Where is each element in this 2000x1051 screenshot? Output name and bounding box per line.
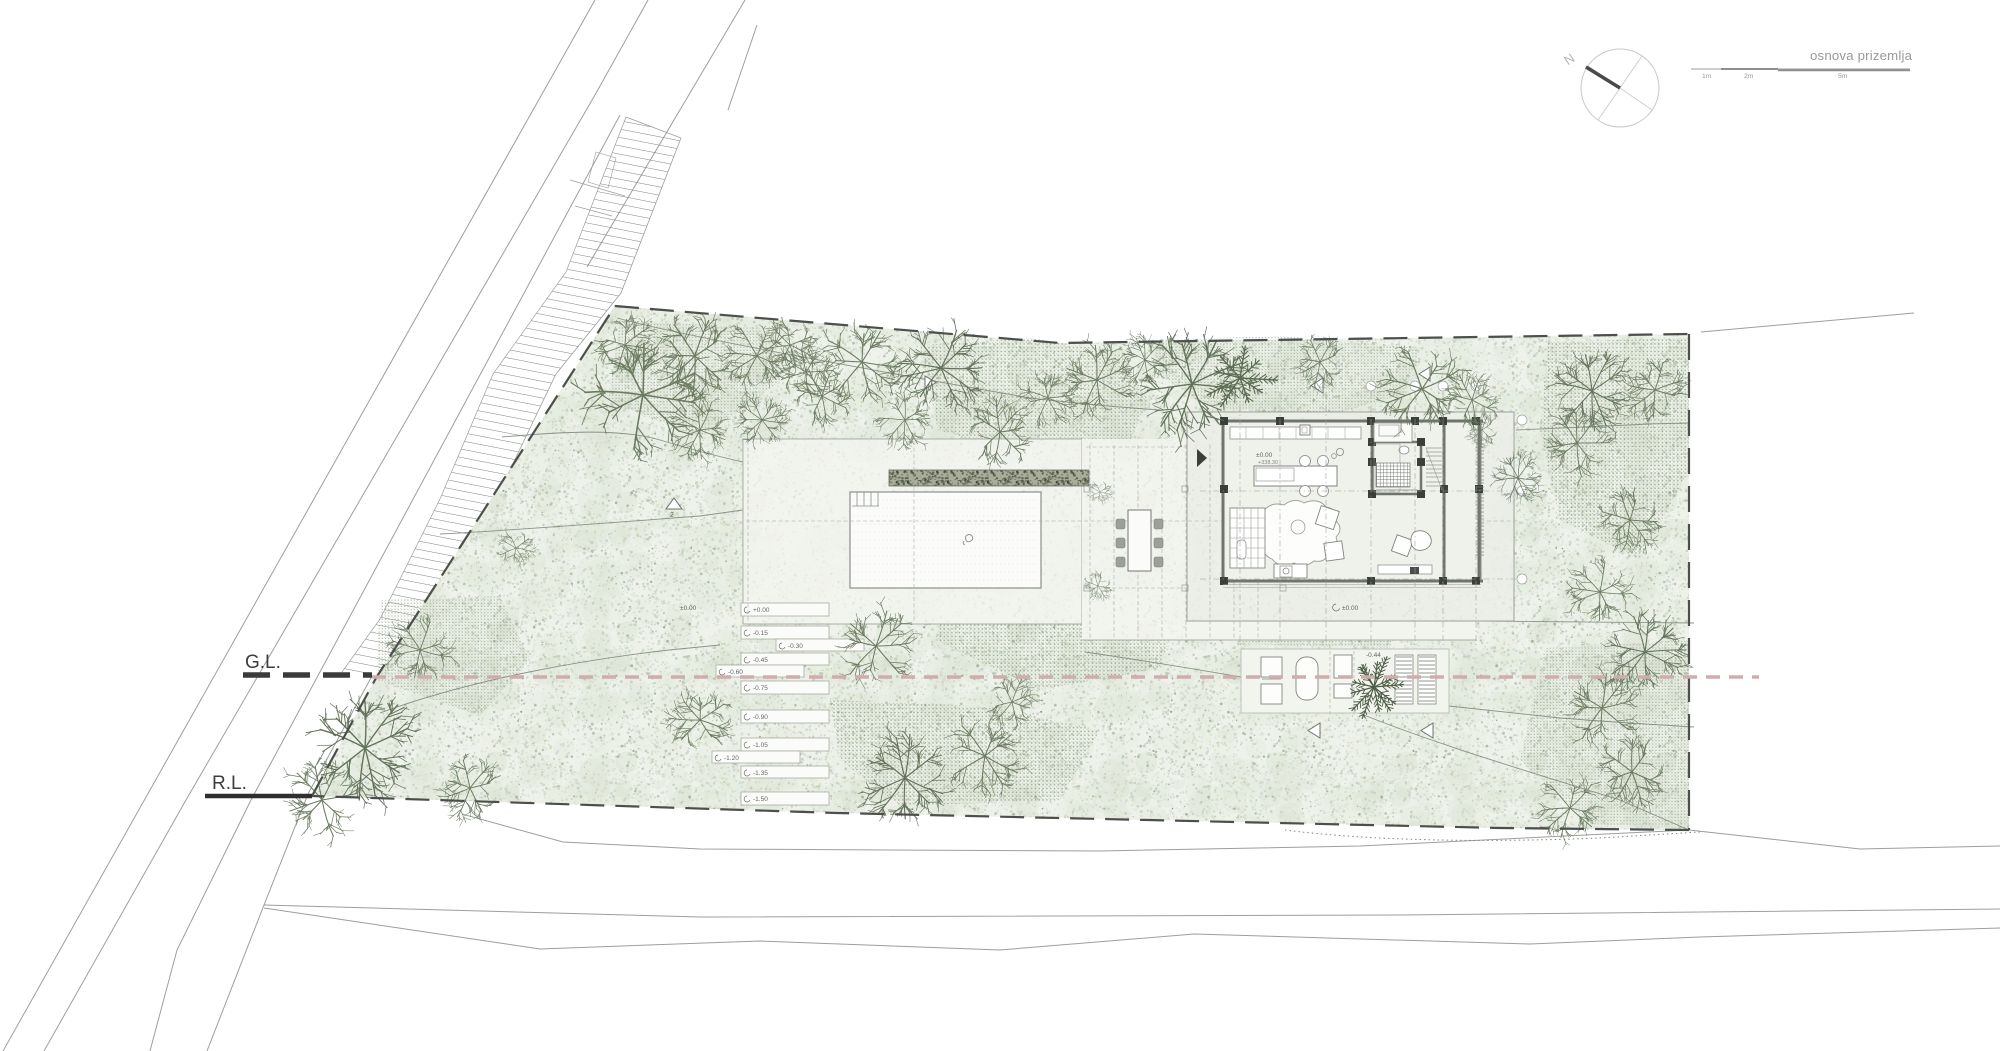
svg-text:-0.90: -0.90 xyxy=(753,714,768,721)
svg-text:2m: 2m xyxy=(1744,73,1754,80)
svg-text:-0.15: -0.15 xyxy=(753,630,768,637)
svg-text:2: 2 xyxy=(670,512,674,519)
svg-text:±0.00: ±0.00 xyxy=(680,605,697,612)
svg-text:+0.00: +0.00 xyxy=(753,607,770,614)
svg-text:R.L.: R.L. xyxy=(212,773,247,794)
svg-text:±0.00: ±0.00 xyxy=(1256,452,1273,459)
svg-text:±0.00: ±0.00 xyxy=(1342,605,1359,612)
svg-text:5m: 5m xyxy=(1838,73,1848,80)
svg-text:-0.60: -0.60 xyxy=(728,669,743,676)
svg-text:+338.30: +338.30 xyxy=(1258,460,1278,466)
svg-text:-0.75: -0.75 xyxy=(753,685,768,692)
svg-text:-1.20: -1.20 xyxy=(724,755,739,762)
svg-text:-1.05: -1.05 xyxy=(753,742,768,749)
svg-text:-1.50: -1.50 xyxy=(753,796,768,803)
svg-text:-0.44: -0.44 xyxy=(1366,652,1381,659)
svg-text:-0.45: -0.45 xyxy=(753,657,768,664)
svg-text:N: N xyxy=(1561,50,1577,68)
svg-text:osnova prizemlja: osnova prizemlja xyxy=(1810,48,1913,63)
svg-text:G.L.: G.L. xyxy=(245,652,281,673)
svg-text:-1.35: -1.35 xyxy=(753,770,768,777)
svg-text:-0.30: -0.30 xyxy=(788,643,803,650)
svg-text:1m: 1m xyxy=(1702,73,1712,80)
